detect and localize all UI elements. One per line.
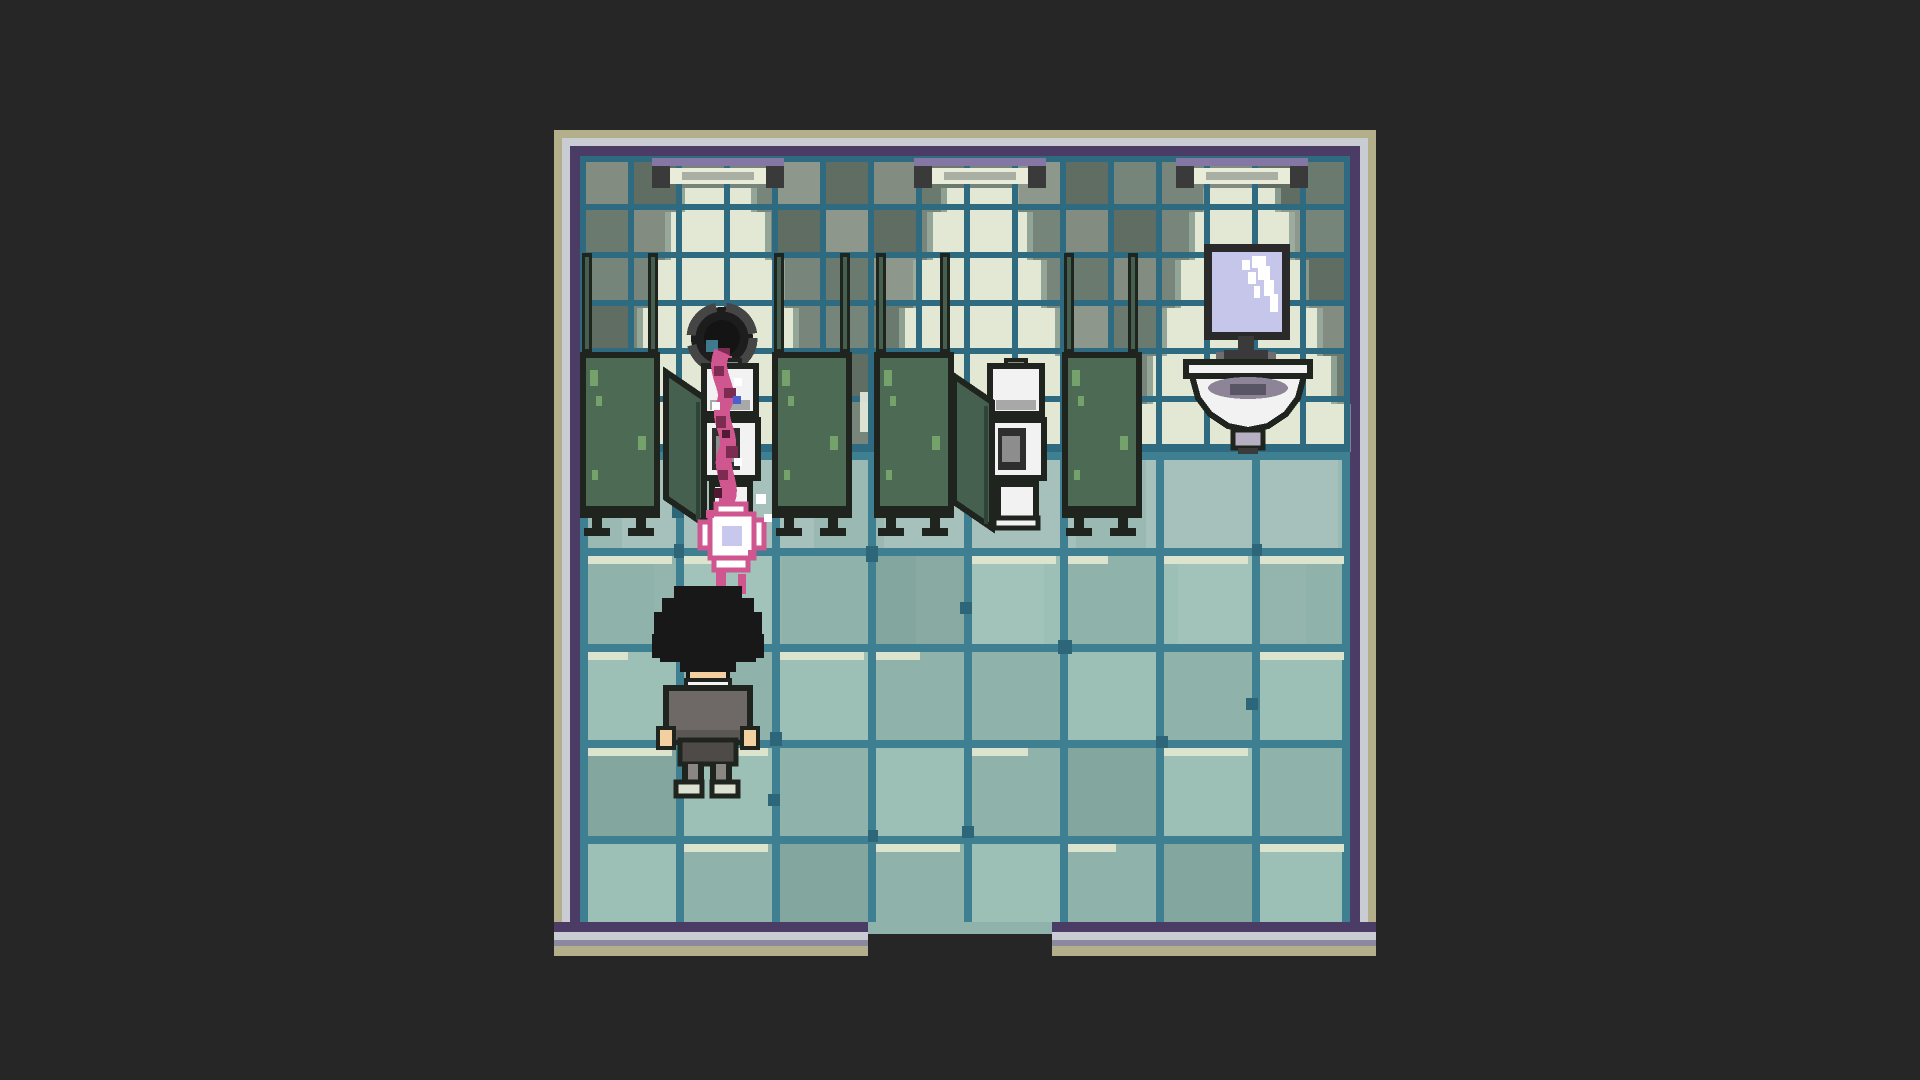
ceiling-light [1176,158,1308,188]
stall-door-open[interactable] [954,376,992,528]
stall-pole [582,253,592,353]
ceiling-light [652,158,784,188]
stall-pole [774,253,784,353]
toilet[interactable] [988,360,1044,528]
game-viewport[interactable] [0,0,1920,1080]
stall-pole [876,253,886,353]
stall-pole [940,253,950,353]
stall-pole [840,253,850,353]
stall-partition[interactable] [580,355,660,536]
stall-pole [1064,253,1074,353]
mirror[interactable] [1208,248,1286,344]
stall-door-open[interactable] [666,372,704,524]
stall-pole [648,253,658,353]
stall-partition[interactable] [1062,355,1142,536]
ceiling-light [914,158,1046,188]
stall-partition[interactable] [874,355,954,536]
stall-pole [1128,253,1138,353]
stall-partition[interactable] [772,355,852,536]
